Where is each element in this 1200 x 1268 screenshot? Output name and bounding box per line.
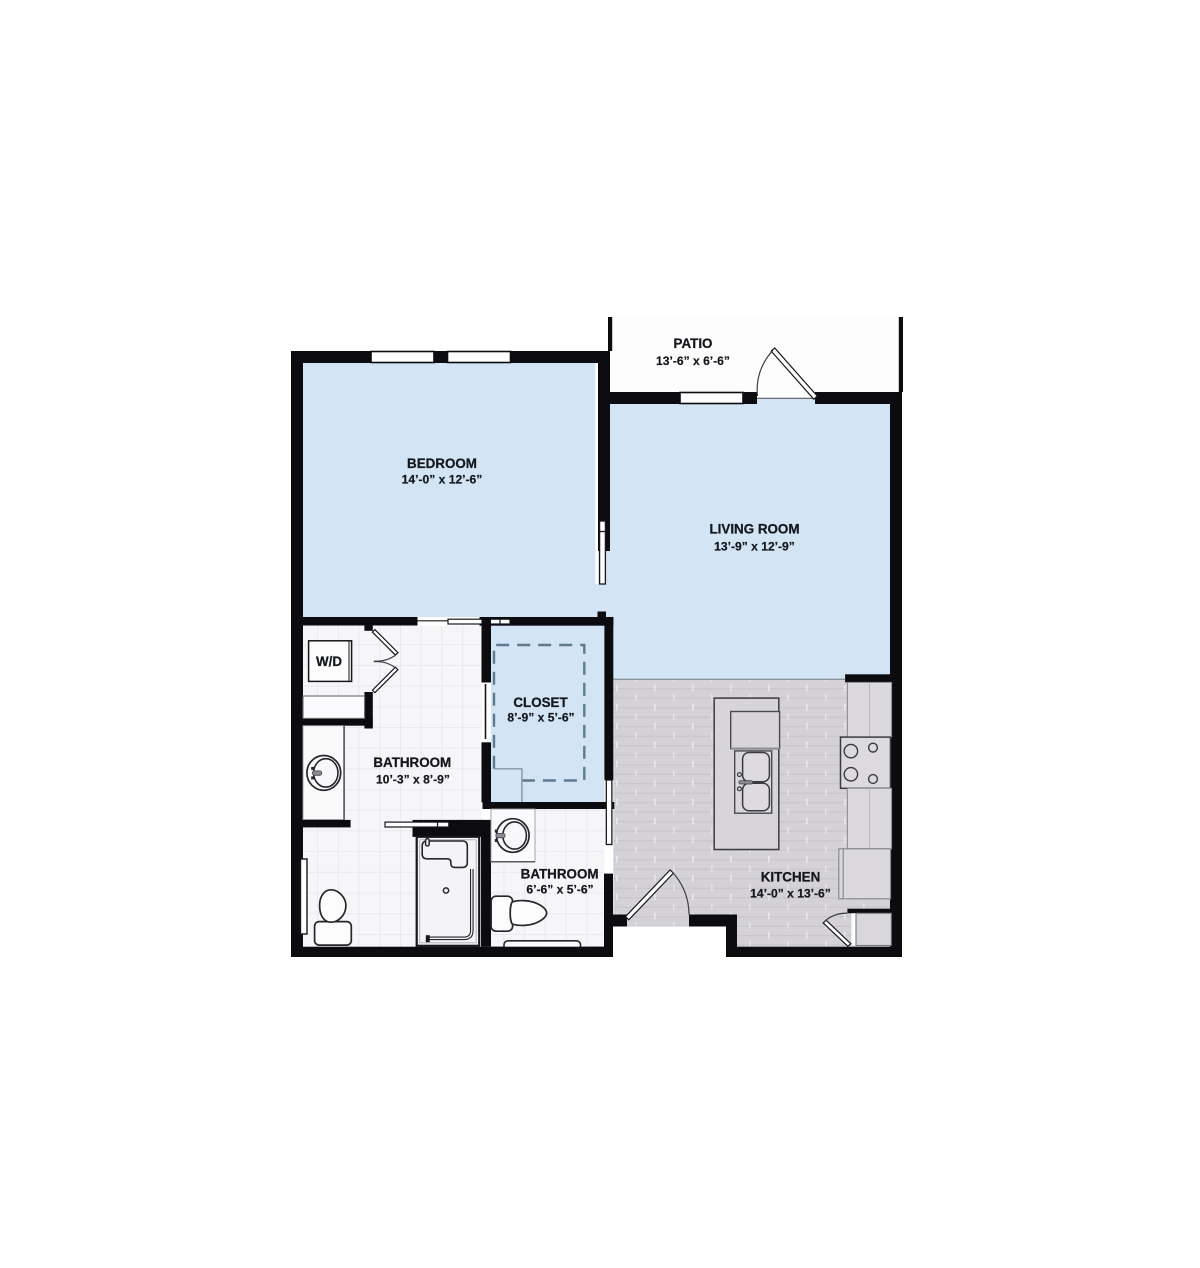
svg-text:8’-9” x 5’-6”: 8’-9” x 5’-6”: [507, 711, 574, 725]
svg-text:6’-6” x 5’-6”: 6’-6” x 5’-6”: [526, 882, 593, 896]
svg-text:13’-6” x 6’-6”: 13’-6” x 6’-6”: [656, 354, 730, 368]
svg-text:10’-3” x 8’-9”: 10’-3” x 8’-9”: [376, 773, 450, 787]
svg-text:BEDROOM: BEDROOM: [407, 456, 477, 471]
svg-text:KITCHEN: KITCHEN: [761, 870, 821, 885]
svg-text:BATHROOM: BATHROOM: [373, 755, 451, 770]
svg-text:CLOSET: CLOSET: [513, 695, 568, 710]
svg-text:13’-9” x 12’-9”: 13’-9” x 12’-9”: [714, 540, 795, 554]
svg-text:PATIO: PATIO: [674, 336, 713, 351]
svg-text:LIVING ROOM: LIVING ROOM: [709, 522, 799, 537]
svg-text:14’-0” x 12’-6”: 14’-0” x 12’-6”: [402, 473, 483, 487]
svg-text:14’-0” x 13’-6”: 14’-0” x 13’-6”: [750, 887, 831, 901]
svg-text:W/D: W/D: [316, 654, 342, 669]
svg-text:BATHROOM: BATHROOM: [521, 867, 599, 882]
